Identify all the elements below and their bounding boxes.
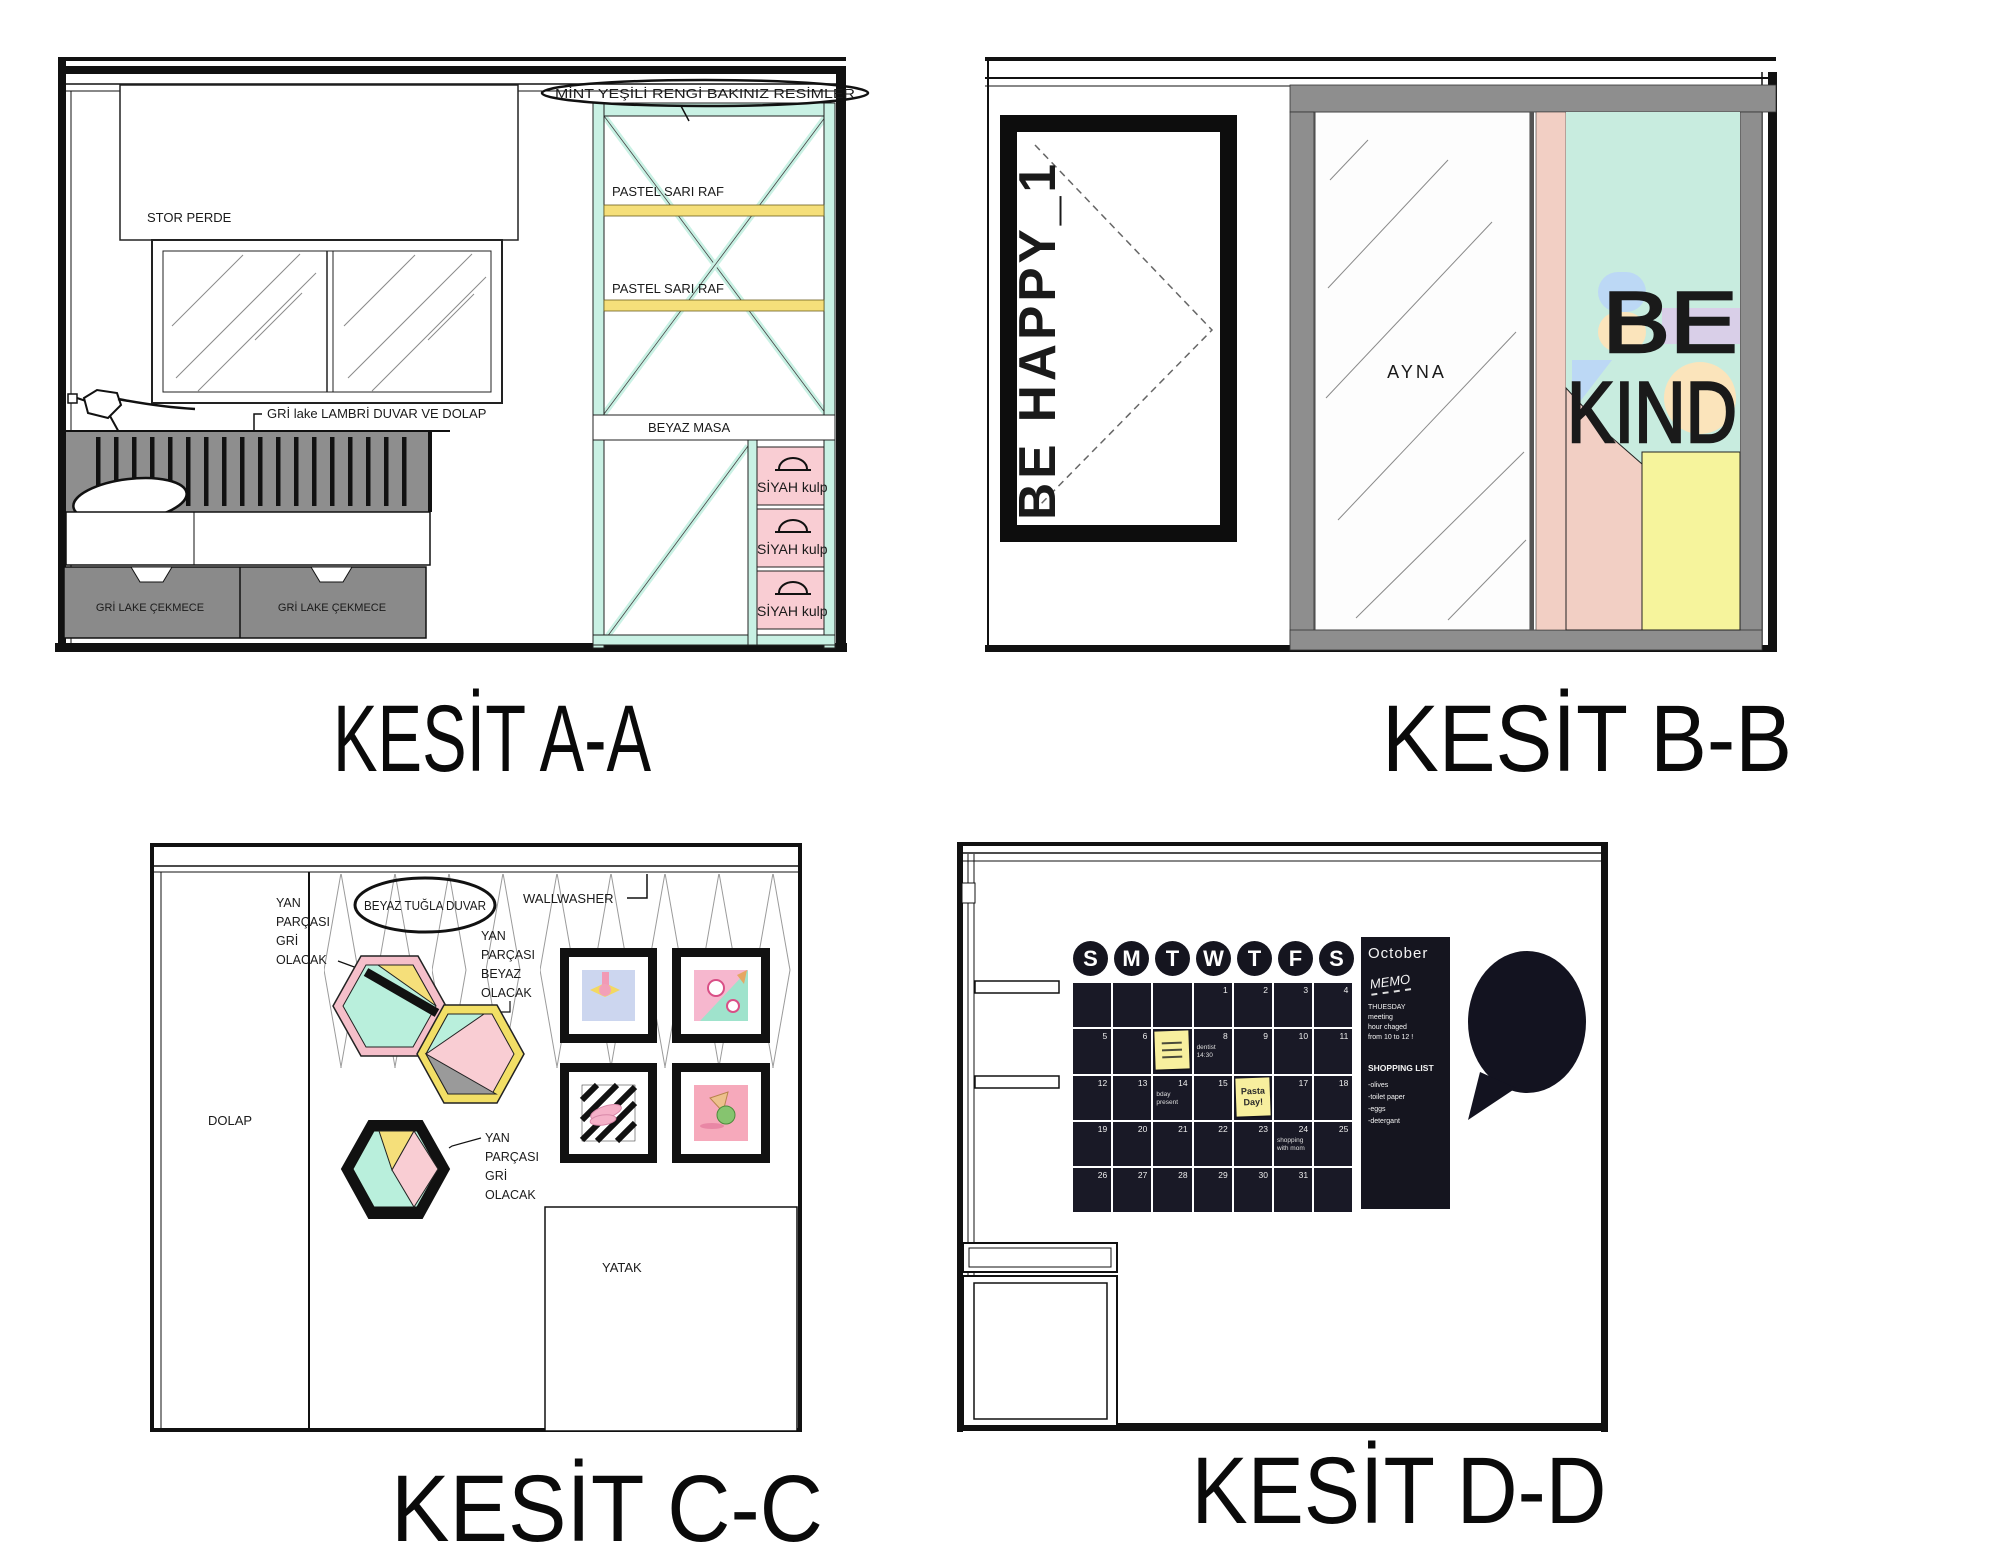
sections-drawing: STOR PERDE GRİ lake LAMBRİ DUVAR VE DOLA xyxy=(0,0,2000,1545)
brick-note-text: BEYAZ TUĞLA DUVAR xyxy=(364,898,486,913)
calendar-day-cell: 10 xyxy=(1274,1029,1312,1073)
shopping-list-item: -olives xyxy=(1368,1080,1443,1092)
day-circle: F xyxy=(1278,941,1313,976)
calendar-day-cell: 17 xyxy=(1274,1076,1312,1120)
mirror-label: AYNA xyxy=(1387,362,1447,382)
calendar-day-cell: 14bdaypresent xyxy=(1153,1076,1191,1120)
calendar-day-cell: 4 xyxy=(1314,983,1352,1027)
calendar-day-cell: 9 xyxy=(1234,1029,1272,1073)
svg-text:GRİ: GRİ xyxy=(485,1169,507,1183)
pink-strip xyxy=(1536,112,1566,630)
picture-frame-2 xyxy=(672,948,770,1043)
shelf-pink-drawers: SİYAH kulp SİYAH kulp SİYAH kulp xyxy=(757,447,828,629)
door-text: BE HAPPY_1 xyxy=(1009,160,1067,520)
roller-blind-label: STOR PERDE xyxy=(147,210,232,225)
wall-shelf-1 xyxy=(975,981,1059,993)
calendar-day-cell: 1 xyxy=(1194,983,1232,1027)
mirror: AYNA xyxy=(1315,112,1530,630)
day-circle: S xyxy=(1319,941,1354,976)
bed-drawers: GRİ LAKE ÇEKMECE GRİ LAKE ÇEKMECE xyxy=(64,567,426,638)
calendar-day-cell: 12 xyxy=(1073,1076,1111,1120)
shopping-list-item: -toilet paper xyxy=(1368,1092,1443,1104)
svg-text:GRİ: GRİ xyxy=(276,934,298,948)
lambri-leader xyxy=(254,414,262,432)
calendar-day-cell: 24shoppingwith mom xyxy=(1274,1122,1312,1166)
wall-shelf-2 xyxy=(975,1076,1059,1088)
closet-label: DOLAP xyxy=(208,1113,252,1128)
svg-text:YAN: YAN xyxy=(276,896,301,910)
svg-text:PARÇASI: PARÇASI xyxy=(481,948,535,962)
calendar-grid: 1 2 3 4 5 6 8dentist14:30 9 10 11 12 13 … xyxy=(1073,983,1352,1212)
desk-cabinet xyxy=(963,1243,1117,1426)
calendar-day-cell: 18 xyxy=(1314,1076,1352,1120)
shopping-list-item: -detergant xyxy=(1368,1116,1443,1128)
wallwasher-label: WALLWASHER xyxy=(523,891,614,906)
shelf-label-2: PASTEL SARI RAF xyxy=(612,281,724,296)
right-wall xyxy=(836,74,846,650)
memo-month: October xyxy=(1368,945,1443,962)
calendar-day-cell xyxy=(1153,1029,1191,1073)
handle-note-3: SİYAH kulp xyxy=(757,602,828,619)
calendar-day-cell: 20 xyxy=(1113,1122,1151,1166)
memo-line: hour chaged xyxy=(1368,1023,1443,1033)
calendar-day-cell xyxy=(1073,983,1111,1027)
svg-text:YAN: YAN xyxy=(485,1131,510,1145)
calendar-day-cell: 21 xyxy=(1153,1122,1191,1166)
roller-blind: STOR PERDE xyxy=(120,85,518,240)
calendar-day-cell xyxy=(1153,983,1191,1027)
shelf-post-left xyxy=(593,103,604,648)
calendar-day-cell: 3 xyxy=(1274,983,1312,1027)
svg-text:BEYAZ: BEYAZ xyxy=(481,967,521,981)
wardrobe-top xyxy=(1290,85,1776,112)
handle-note-1: SİYAH kulp xyxy=(757,478,828,495)
calendar-day-cell: 15 xyxy=(1194,1076,1232,1120)
wardrobe: AYNA BE KIND xyxy=(1290,85,1776,650)
calendar-day-cell: 22 xyxy=(1194,1122,1232,1166)
window xyxy=(152,240,502,403)
calendar-day-cell: 11 xyxy=(1314,1029,1352,1073)
lambri-note: GRİ lake LAMBRİ DUVAR VE DOLAP xyxy=(267,406,486,421)
day-circle: S xyxy=(1073,941,1108,976)
bed-platform xyxy=(66,512,430,565)
be-kind-art: BE KIND xyxy=(1566,112,1740,630)
section-title-cc: KESİT C-C xyxy=(391,1456,823,1545)
bed-label: YATAK xyxy=(602,1260,642,1275)
ceiling-band xyxy=(60,66,846,74)
drawer-label-right: GRİ LAKE ÇEKMECE xyxy=(278,601,386,614)
right-wall xyxy=(1768,72,1777,650)
picture-frame-1 xyxy=(560,948,657,1043)
shelf-label-1: PASTEL SARI RAF xyxy=(612,184,724,199)
section-aa: STOR PERDE GRİ lake LAMBRİ DUVAR VE DOLA xyxy=(55,57,868,792)
day-circle: T xyxy=(1237,941,1272,976)
drawing-sheet: STOR PERDE GRİ lake LAMBRİ DUVAR VE DOLA xyxy=(0,0,2000,1545)
section-title-dd: KESİT D-D xyxy=(1192,1438,1607,1544)
calendar-day-cell xyxy=(1113,983,1151,1027)
memo-line: THUESDAY xyxy=(1368,1003,1443,1013)
calendar-day-cell xyxy=(1314,1168,1352,1212)
hexagon-shelf-3 xyxy=(342,1121,449,1218)
section-title-aa: KESİT A-A xyxy=(333,686,651,792)
svg-text:OLACAK: OLACAK xyxy=(276,953,327,967)
day-circle: T xyxy=(1155,941,1190,976)
calendar-day-cell: 25 xyxy=(1314,1122,1352,1166)
calendar-day-cell: 6 xyxy=(1113,1029,1151,1073)
art-word-kind: KIND xyxy=(1567,365,1737,461)
shelf-unit: PASTEL SARI RAF PASTEL SARI RAF BEYAZ MA… xyxy=(593,103,835,648)
day-circle: M xyxy=(1114,941,1149,976)
sticky-note-scribble xyxy=(1155,1031,1191,1070)
svg-text:OLACAK: OLACAK xyxy=(485,1188,536,1202)
calendar-day-cell: 5 xyxy=(1073,1029,1111,1073)
sticky-note-pasta: PastaDay! xyxy=(1235,1077,1271,1116)
yellow-shelf-1 xyxy=(604,205,824,216)
calendar-day-cell: 13 xyxy=(1113,1076,1151,1120)
speech-bubble-decal xyxy=(1468,951,1586,1120)
shopping-list-title: SHOPPING LIST xyxy=(1368,1063,1443,1073)
right-wall xyxy=(1601,842,1608,1432)
calendar-day-cell: 27 xyxy=(1113,1168,1151,1212)
art-word-be: BE xyxy=(1603,275,1738,371)
picture-frame-3 xyxy=(560,1063,657,1163)
section-bb: BE HAPPY_1 AYNA xyxy=(985,57,1792,792)
calendar-day-cell: 30 xyxy=(1234,1168,1272,1212)
shelf-post-right xyxy=(824,103,835,648)
svg-text:OLACAK: OLACAK xyxy=(481,986,532,1000)
calendar-day-headers: S M T W T F S xyxy=(1073,941,1354,976)
mint-note-text: MİNT YEŞİLİ RENGİ BAKINIZ RESİMLER xyxy=(555,86,855,101)
door: BE HAPPY_1 xyxy=(1000,115,1237,542)
drawer-label-left: GRİ LAKE ÇEKMECE xyxy=(96,601,204,614)
picture-frame-4 xyxy=(672,1063,770,1163)
calendar-day-cell: 31 xyxy=(1274,1168,1312,1212)
handle-note-2: SİYAH kulp xyxy=(757,540,828,557)
svg-text:PARÇASI: PARÇASI xyxy=(276,915,330,929)
ceiling-line xyxy=(60,57,846,61)
calendar-day-cell: 29 xyxy=(1194,1168,1232,1212)
calendar-day-cell: 26 xyxy=(1073,1168,1111,1212)
yellow-shelf-2 xyxy=(604,300,824,311)
calendar-day-cell: PastaDay! xyxy=(1234,1076,1272,1120)
desk-label: BEYAZ MASA xyxy=(648,420,730,435)
memo-line: from 10 to 12 ! xyxy=(1368,1033,1443,1043)
memo-board: October MEMO THUESDAY meeting hour chage… xyxy=(1361,937,1450,1209)
memo-line: meeting xyxy=(1368,1013,1443,1023)
svg-text:YAN: YAN xyxy=(481,929,506,943)
day-circle: W xyxy=(1196,941,1231,976)
calendar-day-cell: 19 xyxy=(1073,1122,1111,1166)
section-cc: DOLAP BEYAZ TUĞLA DUVAR WALLWASHER YAN P… xyxy=(152,845,823,1545)
calendar-day-cell: 28 xyxy=(1153,1168,1191,1212)
shopping-list-item: -eggs xyxy=(1368,1104,1443,1116)
label-gray-2: YAN PARÇASI GRİ OLACAK xyxy=(449,1131,539,1202)
left-wall xyxy=(58,57,66,650)
memo-title: MEMO xyxy=(1369,971,1412,995)
section-title-bb: KESİT B-B xyxy=(1382,686,1792,792)
wall-notch xyxy=(962,883,975,903)
calendar-day-cell: 23 xyxy=(1234,1122,1272,1166)
calendar-day-cell: 8dentist14:30 xyxy=(1194,1029,1232,1073)
svg-text:PARÇASI: PARÇASI xyxy=(485,1150,539,1164)
calendar-day-cell: 2 xyxy=(1234,983,1272,1027)
bed: YATAK xyxy=(545,1207,797,1431)
